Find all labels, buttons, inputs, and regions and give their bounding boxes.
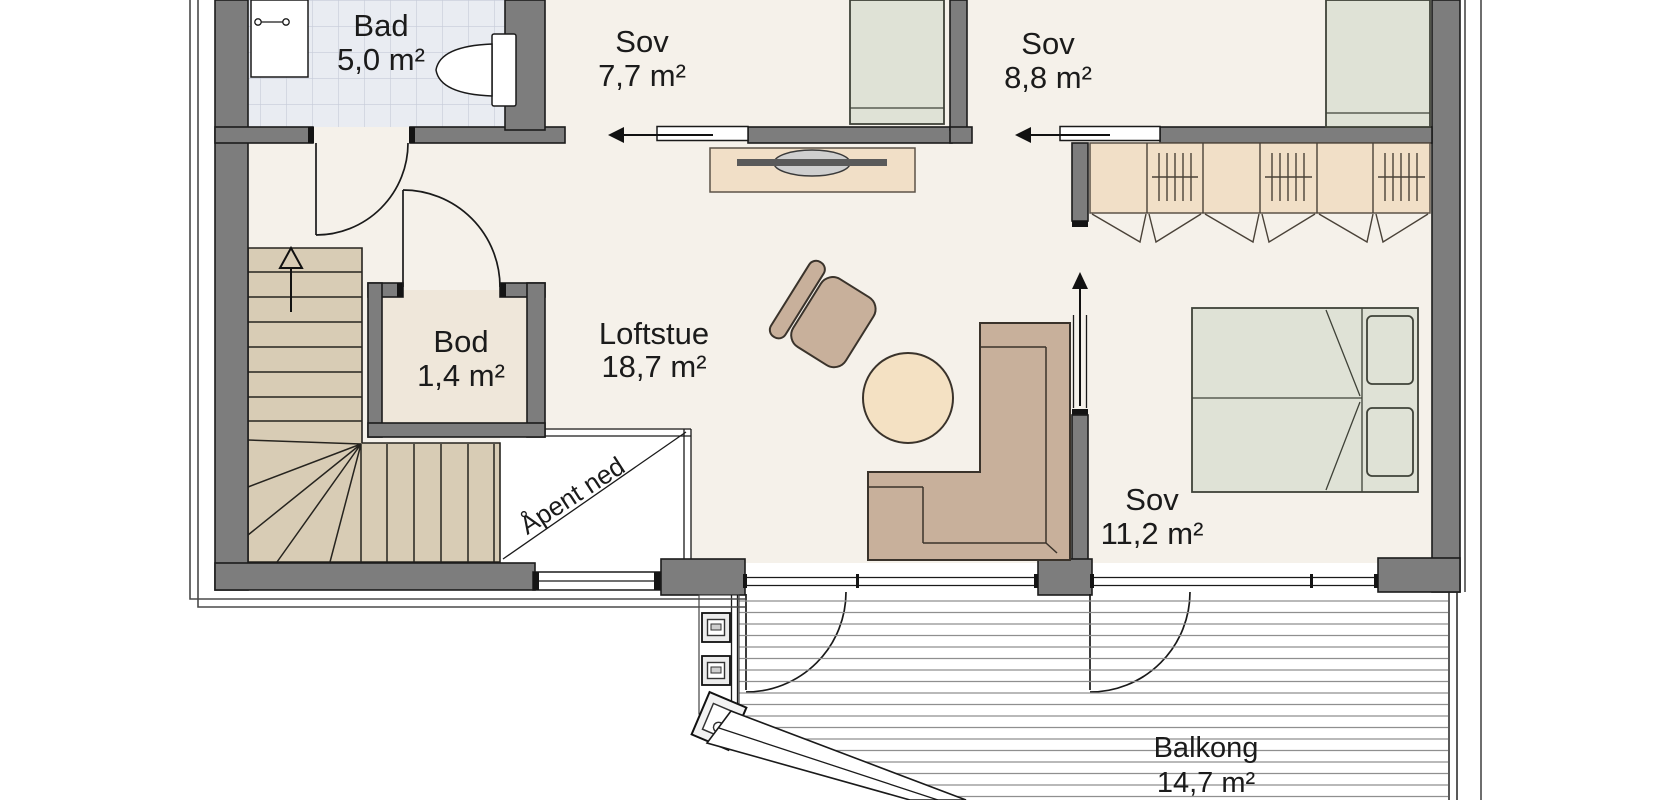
double-bed-icon: [1192, 308, 1418, 492]
exterior-wall-left: [215, 0, 248, 590]
balcony-door-right-swing-icon: [1090, 592, 1190, 692]
balcony-railing: [707, 711, 966, 800]
balcony-pier-middle: [1038, 559, 1092, 595]
label-loft-name: Loftstue: [599, 316, 709, 351]
label-storage-area: 1,4 m²: [417, 358, 505, 393]
balcony-glass-wall-left: [743, 574, 1038, 588]
pillow-icon: [1367, 408, 1413, 476]
balcony-door-left-swing-icon: [746, 592, 846, 692]
balcony-post-icon: [702, 613, 730, 642]
label-bedroom-medium-name: Sov: [1021, 26, 1075, 61]
exterior-wall-bottom-left: [215, 563, 535, 590]
bed-medium-icon: [1326, 0, 1430, 127]
balcony-pier-left: [661, 559, 745, 595]
floor-plan-drawing: Bad 5,0 m² Sov 7,7 m² Sov 8,8 m² Bod 1,4…: [0, 0, 1670, 800]
pillow-icon: [1367, 316, 1413, 384]
label-bedroom-small-name: Sov: [615, 24, 669, 59]
label-balcony-area: 14,7 m²: [1157, 767, 1256, 799]
exterior-wall-right: [1432, 0, 1460, 592]
balcony-deck: [692, 592, 1457, 800]
label-bedroom-small-area: 7,7 m²: [598, 58, 686, 93]
coffee-table-icon: [863, 353, 953, 443]
balcony-glass-wall-right: [1090, 574, 1378, 588]
windows: [533, 572, 1378, 590]
tv-console-icon: [710, 148, 915, 192]
window-bottom-left: [533, 572, 660, 590]
label-balcony-name: Balkong: [1154, 732, 1259, 764]
washbasin-icon: [251, 0, 308, 77]
label-bedroom-medium-area: 8,8 m²: [1004, 60, 1092, 95]
label-loft-area: 18,7 m²: [601, 349, 706, 384]
label-bedroom-master-area: 11,2 m²: [1101, 516, 1204, 551]
wall-between-bedrooms: [950, 0, 967, 130]
balcony-edge-right: [1449, 592, 1457, 800]
label-bathroom-area: 5,0 m²: [337, 42, 425, 77]
balcony-post-icon: [702, 656, 730, 685]
exterior-wall-bottom-right-corner: [1378, 558, 1460, 592]
label-bedroom-master-name: Sov: [1125, 482, 1179, 517]
bed-small-icon: [850, 0, 944, 124]
floor-plan-page: Bad 5,0 m² Sov 7,7 m² Sov 8,8 m² Bod 1,4…: [0, 0, 1670, 800]
label-storage-name: Bod: [433, 324, 488, 359]
label-bathroom-name: Bad: [353, 8, 408, 43]
